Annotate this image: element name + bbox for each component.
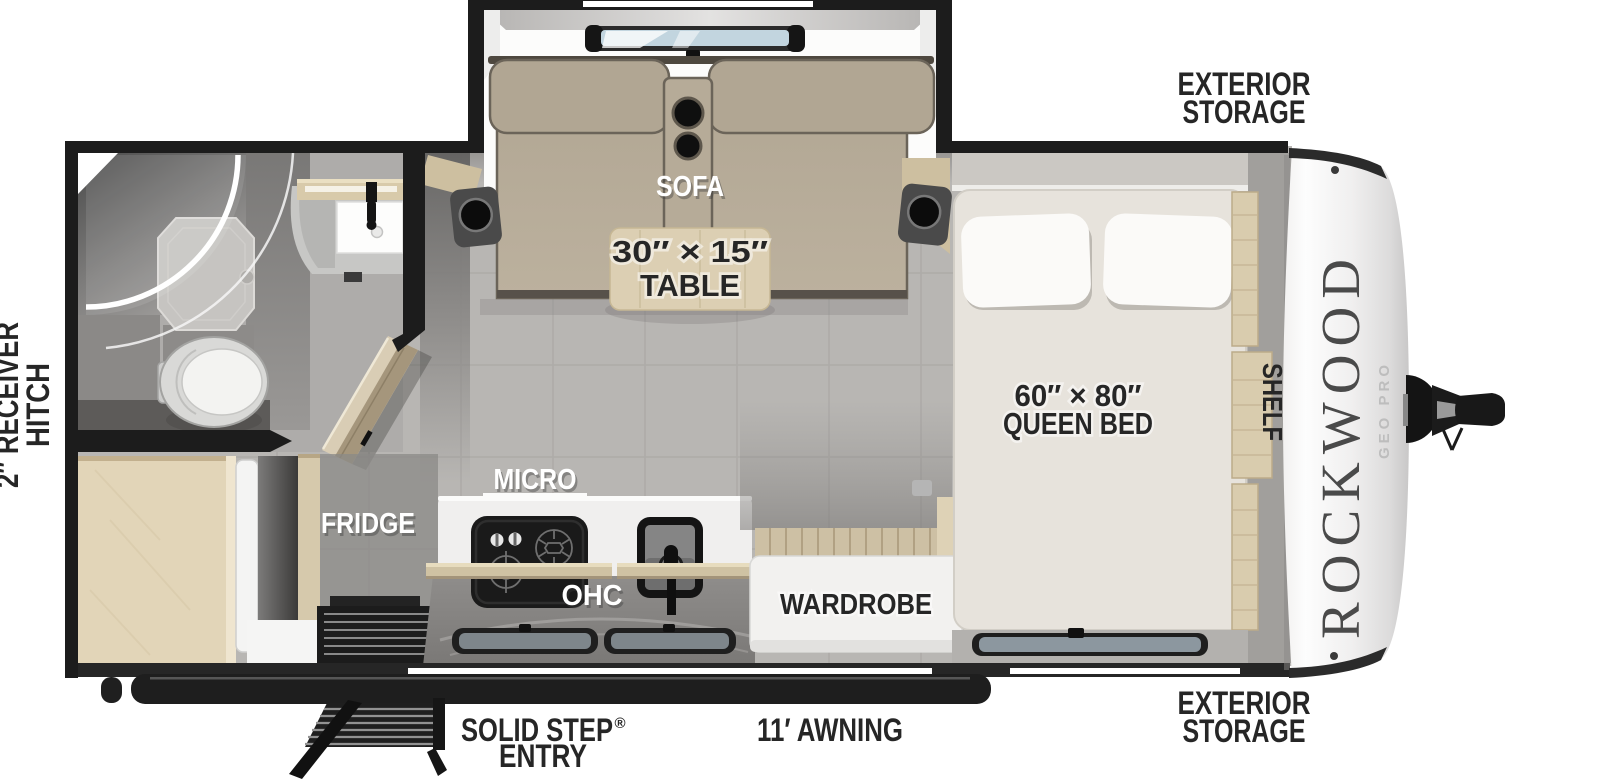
svg-text:MICRO: MICRO (494, 464, 577, 496)
svg-text:SOFA: SOFA (656, 171, 724, 203)
svg-text:FRIDGE: FRIDGE (321, 508, 415, 540)
svg-text:ROCKWOOD: ROCKWOOD (1310, 251, 1371, 639)
svg-text:STORAGE: STORAGE (1183, 713, 1306, 749)
svg-text:®: ® (614, 715, 625, 732)
svg-text:SHELF: SHELF (1257, 363, 1288, 441)
svg-text:OHC: OHC (562, 580, 623, 612)
svg-text:STORAGE: STORAGE (1183, 94, 1306, 130)
svg-text:11′ AWNING: 11′ AWNING (757, 712, 903, 748)
svg-text:HITCH: HITCH (20, 363, 56, 447)
svg-text:QUEEN BED: QUEEN BED (1003, 406, 1153, 441)
svg-text:ENTRY: ENTRY (499, 738, 587, 774)
svg-text:30″ × 15″: 30″ × 15″ (612, 234, 768, 269)
svg-text:TABLE: TABLE (640, 268, 740, 303)
svg-text:WARDROBE: WARDROBE (780, 589, 932, 621)
svg-text:GEO PRO: GEO PRO (1376, 361, 1393, 459)
